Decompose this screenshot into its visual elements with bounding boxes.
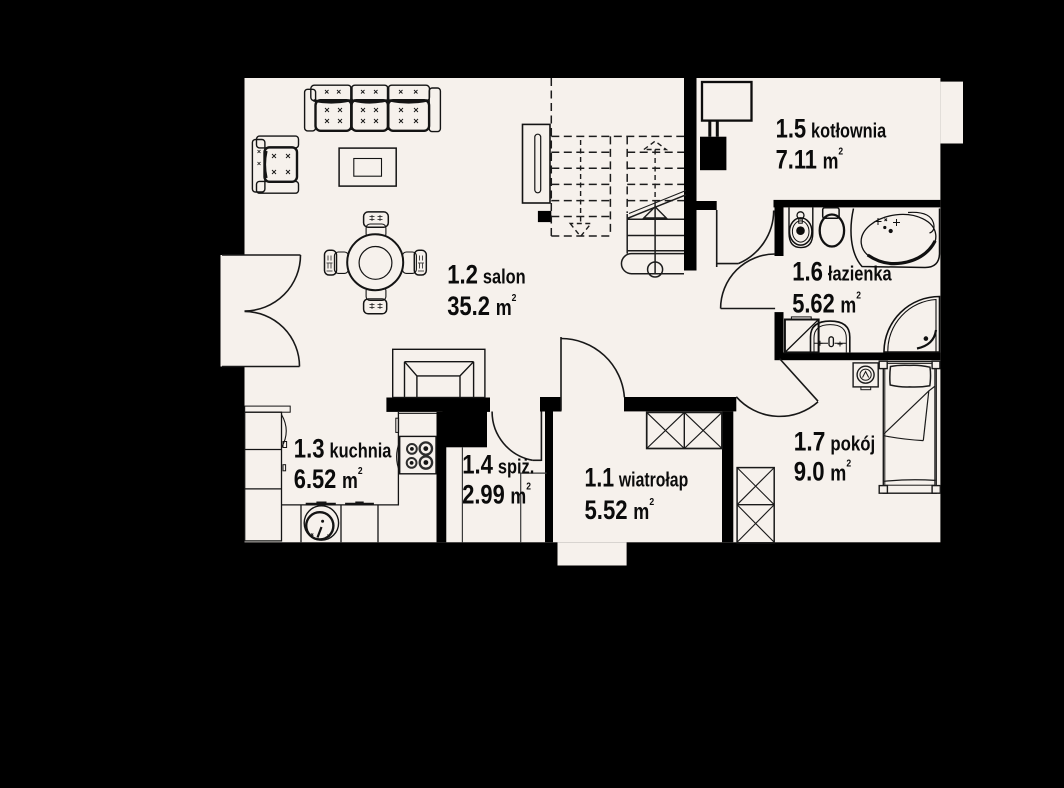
- svg-text:6.52m2: 6.52m2: [294, 465, 363, 495]
- svg-text:5.62m2: 5.62m2: [792, 289, 861, 319]
- svg-text:1.4spiż.: 1.4spiż.: [462, 450, 534, 480]
- svg-text:5.52m2: 5.52m2: [585, 496, 655, 526]
- svg-text:1.3kuchnia: 1.3kuchnia: [294, 435, 392, 465]
- svg-text:35.2m2: 35.2m2: [447, 292, 516, 322]
- svg-text:7.11m2: 7.11m2: [776, 146, 844, 176]
- svg-text:1.7pokój: 1.7pokój: [794, 426, 875, 456]
- svg-text:1.2salon: 1.2salon: [447, 261, 525, 291]
- svg-text:9.0m2: 9.0m2: [794, 457, 851, 487]
- svg-text:1.5kotłownia: 1.5kotłownia: [776, 114, 887, 144]
- svg-text:1.6łazienka: 1.6łazienka: [792, 258, 892, 288]
- svg-text:2.99m2: 2.99m2: [462, 481, 531, 511]
